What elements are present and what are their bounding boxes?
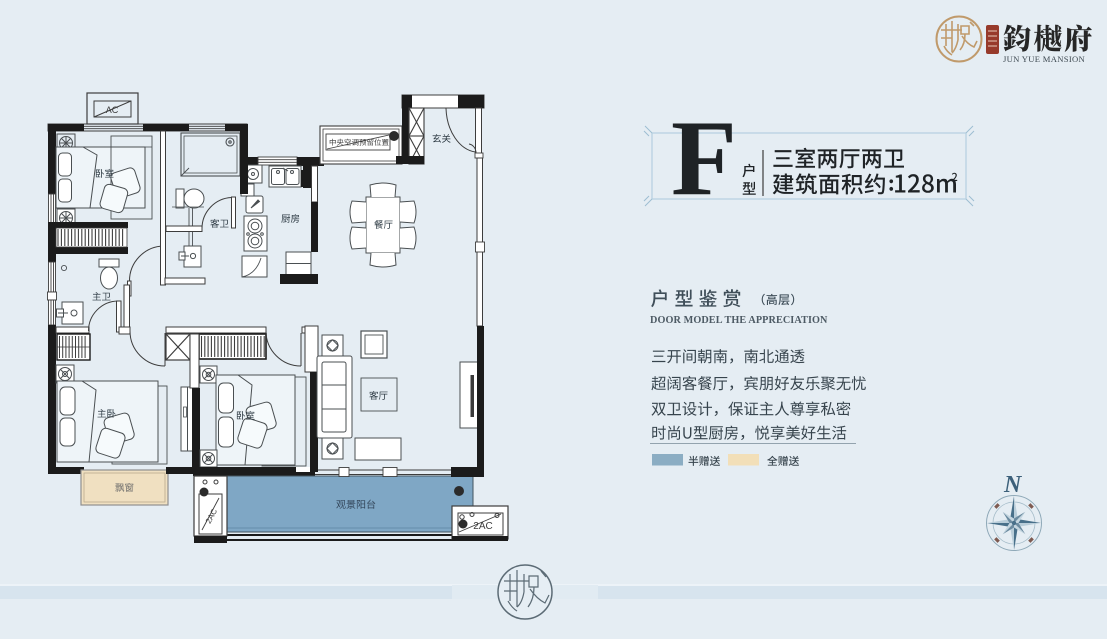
svg-text:DOOR MODEL THE APPRECIATION: DOOR MODEL THE APPRECIATION [650, 315, 828, 326]
svg-text:AC: AC [106, 105, 119, 115]
svg-text:JUN YUE MANSION: JUN YUE MANSION [1003, 54, 1085, 64]
svg-text:2AC: 2AC [473, 521, 492, 532]
svg-text:F: F [671, 99, 737, 218]
svg-text:N: N [1003, 472, 1023, 498]
